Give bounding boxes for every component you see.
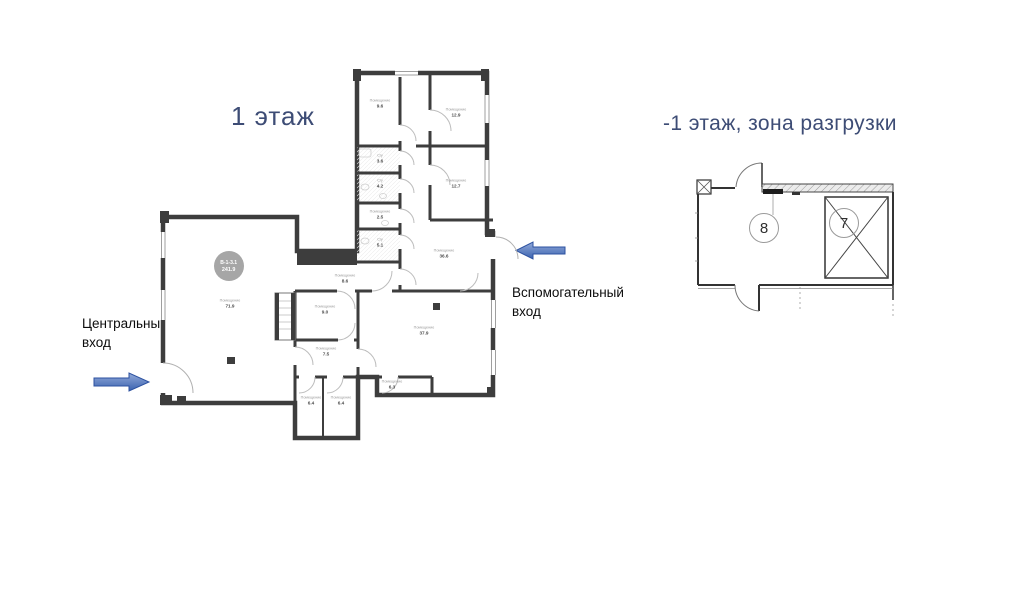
room-label: Помещение71.9 <box>213 296 246 312</box>
room-label: С/у5.1 <box>375 235 385 251</box>
room-label: Помещение36.6 <box>427 246 460 262</box>
wall-band <box>297 249 357 265</box>
door-sill <box>763 189 783 194</box>
room-label: С/у4.2 <box>375 176 385 192</box>
room-label: Помещение37.9 <box>407 323 440 339</box>
room-label: Помещение9.0 <box>308 302 341 318</box>
column <box>227 357 235 364</box>
zone-circle-7: 7 <box>829 208 859 238</box>
top-door-arc <box>736 163 762 187</box>
auxiliary-entrance-label: Вспомогательный вход <box>512 283 624 321</box>
entrance-arrow-right-icon <box>93 370 151 394</box>
auxiliary-door <box>489 237 518 259</box>
unit-info-badge: В-1-3.1 241.9 <box>214 251 244 281</box>
room-label: С/у3.6 <box>375 151 385 167</box>
central-entrance-label: Центральный вход <box>82 314 168 352</box>
shaft <box>275 293 295 340</box>
room-label: Помещение7.5 <box>309 344 342 360</box>
unit-code: В-1-3.1 <box>221 260 238 266</box>
floor-plan-page: 1 этаж -1 этаж, зона разгрузки Центральн… <box>0 0 1009 600</box>
room-label: Помещение8.6 <box>328 271 361 287</box>
room-label: Помещение6.3 <box>375 377 408 393</box>
zone-circle-8: 8 <box>749 213 779 243</box>
platform-box <box>825 197 888 278</box>
unit-total-area: 241.9 <box>222 266 236 272</box>
room-label: Помещение6.4 <box>294 393 327 409</box>
room-label: Помещение12.7 <box>439 176 472 192</box>
room-label: Помещение12.9 <box>439 105 472 121</box>
room-label: Помещение9.6 <box>363 96 396 112</box>
column-marker <box>697 180 711 194</box>
floor-plan-basement <box>685 158 915 325</box>
zone-number: 8 <box>760 220 768 237</box>
room-label: Помещение6.4 <box>324 393 357 409</box>
floor-plan-first-floor <box>160 65 525 447</box>
room-label: Помещение2.5 <box>363 207 396 223</box>
bottom-wall <box>698 285 893 311</box>
basement-title: -1 этаж, зона разгрузки <box>663 112 897 136</box>
column <box>433 303 440 310</box>
zone-number: 7 <box>840 215 848 232</box>
